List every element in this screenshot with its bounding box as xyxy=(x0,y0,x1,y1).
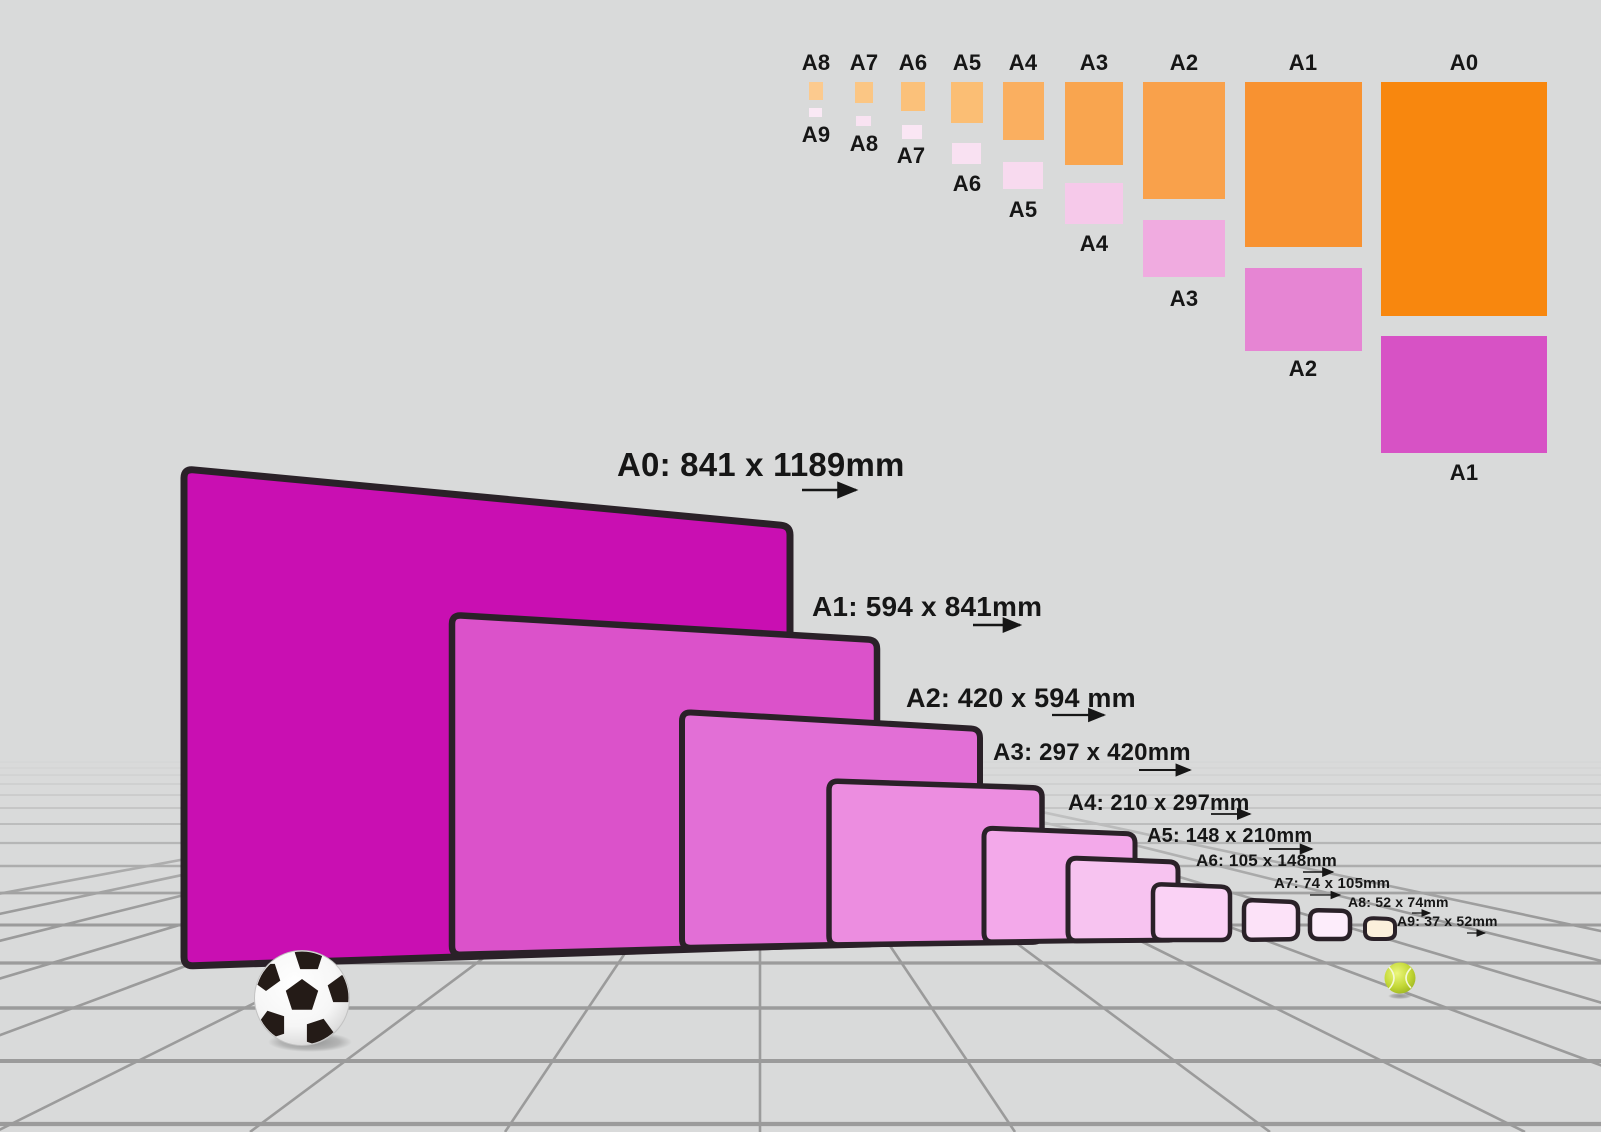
inset-a5-portrait xyxy=(951,82,983,123)
panel-a6 xyxy=(1153,884,1230,940)
inset-label-top-a6: A6 xyxy=(899,51,928,74)
inset-label-top-a5: A5 xyxy=(953,51,982,74)
panel-a9 xyxy=(1365,918,1395,939)
panel-a7 xyxy=(1244,900,1298,940)
size-label-a2: A2: 420 x 594 mm xyxy=(906,684,1136,712)
tennis-ball-shadow xyxy=(1388,993,1412,999)
inset-label-top-a8: A8 xyxy=(802,51,831,74)
inset-a7-portrait xyxy=(855,82,873,103)
paper-sizes-diagram: A0: 841 x 1189mm A1: 594 x 841mm A2: 420… xyxy=(0,0,1601,1132)
size-label-a3: A3: 297 x 420mm xyxy=(993,740,1191,765)
size-label-a6: A6: 105 x 148mm xyxy=(1196,852,1337,870)
inset-label-top-a0: A0 xyxy=(1450,51,1479,74)
inset-label-bottom-a4: A4 xyxy=(1080,232,1109,255)
inset-a0-portrait xyxy=(1381,82,1547,316)
inset-label-bottom-a3: A3 xyxy=(1170,287,1199,310)
inset-label-top-a3: A3 xyxy=(1080,51,1109,74)
inset-a1-landscape xyxy=(1381,336,1547,453)
inset-a4-landscape xyxy=(1065,183,1123,224)
inset-label-bottom-a5: A5 xyxy=(1009,198,1038,221)
inset-a8-portrait xyxy=(809,82,823,100)
inset-a5-landscape xyxy=(1003,162,1043,189)
inset-label-bottom-a9: A9 xyxy=(802,123,831,146)
inset-a2-portrait xyxy=(1143,82,1225,199)
size-label-a7: A7: 74 x 105mm xyxy=(1274,876,1390,892)
inset-a6-landscape xyxy=(952,143,981,164)
inset-label-bottom-a1: A1 xyxy=(1450,461,1479,484)
inset-a6-portrait xyxy=(901,82,925,111)
inset-a2-landscape xyxy=(1245,268,1362,351)
inset-a3-portrait xyxy=(1065,82,1123,165)
panel-a8 xyxy=(1310,910,1350,939)
inset-a3-landscape xyxy=(1143,220,1225,277)
inset-a8-landscape xyxy=(856,116,871,126)
inset-label-top-a7: A7 xyxy=(850,51,879,74)
inset-label-bottom-a6: A6 xyxy=(953,172,982,195)
inset-chart xyxy=(809,82,1547,453)
size-label-a1: A1: 594 x 841mm xyxy=(812,592,1042,621)
inset-label-top-a1: A1 xyxy=(1289,51,1318,74)
inset-a4-portrait xyxy=(1003,82,1044,140)
inset-label-bottom-a7: A7 xyxy=(897,144,926,167)
inset-a1-portrait xyxy=(1245,82,1362,247)
inset-label-bottom-a2: A2 xyxy=(1289,357,1318,380)
size-label-a4: A4: 210 x 297mm xyxy=(1068,791,1250,814)
inset-label-top-a2: A2 xyxy=(1170,51,1199,74)
size-label-a5: A5: 148 x 210mm xyxy=(1147,826,1312,847)
main-panels xyxy=(184,470,1395,966)
diagram-canvas xyxy=(0,0,1601,1132)
inset-a7-landscape xyxy=(902,125,922,139)
size-label-a8: A8: 52 x 74mm xyxy=(1348,895,1449,910)
inset-label-bottom-a8: A8 xyxy=(850,132,879,155)
inset-label-top-a4: A4 xyxy=(1009,51,1038,74)
inset-a9-landscape xyxy=(809,108,822,117)
size-label-a9: A9: 37 x 52mm xyxy=(1397,914,1498,929)
size-label-a0: A0: 841 x 1189mm xyxy=(617,448,905,483)
